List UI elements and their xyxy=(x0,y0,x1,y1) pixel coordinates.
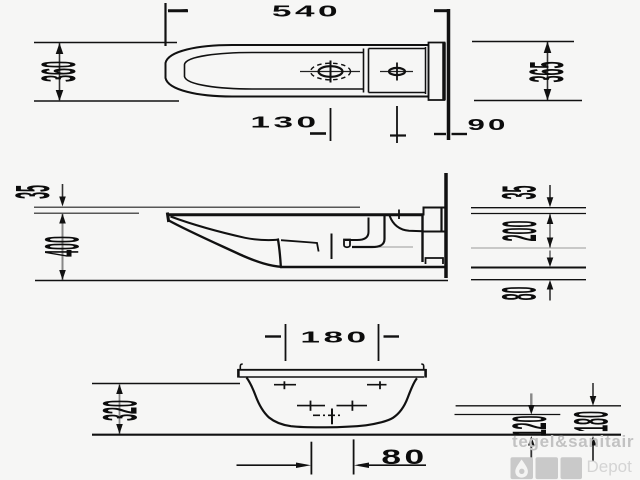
svg-text:35: 35 xyxy=(493,186,546,200)
svg-text:180: 180 xyxy=(565,411,618,432)
svg-text:180: 180 xyxy=(300,328,369,346)
svg-text:200: 200 xyxy=(494,221,547,242)
svg-text:540: 540 xyxy=(272,2,341,20)
svg-text:80: 80 xyxy=(493,287,546,301)
svg-text:130: 130 xyxy=(250,113,319,131)
svg-text:360: 360 xyxy=(33,61,86,82)
svg-text:90: 90 xyxy=(468,116,509,133)
svg-text:400: 400 xyxy=(36,236,89,257)
svg-text:320: 320 xyxy=(94,400,147,421)
svg-text:365: 365 xyxy=(521,62,574,83)
svg-text:80: 80 xyxy=(381,446,427,469)
svg-text:tegel&sanitair: tegel&sanitair xyxy=(512,432,634,451)
svg-text:Depot: Depot xyxy=(587,457,633,476)
svg-text:35: 35 xyxy=(7,185,60,199)
